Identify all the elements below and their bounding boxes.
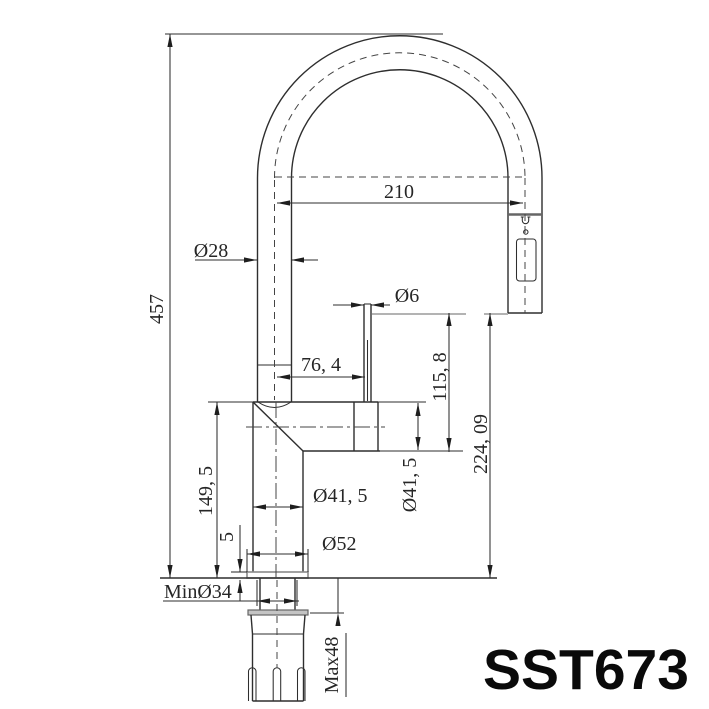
faucet-technical-drawing: 457 210 Ø28 Ø6 76, 4 115, 8 224, 09 Ø41,…	[0, 0, 709, 709]
dimension-d41-5-outlet	[378, 402, 426, 450]
spray-button-dot	[524, 230, 528, 234]
label-outlet-to-deck: 224, 09	[470, 414, 492, 474]
label-base-dia: Ø52	[322, 533, 356, 555]
label-overall-height: 457	[146, 294, 168, 324]
spray-toggle-button	[517, 239, 537, 281]
label-body-height: 149, 5	[195, 466, 217, 516]
label-outlet-dia: Ø41, 5	[399, 458, 421, 512]
label-hose-dia: Ø6	[395, 285, 419, 307]
model-number: SST673	[483, 638, 689, 702]
label-hose-offset: 76, 4	[301, 354, 341, 376]
label-outlet-height: 115, 8	[429, 352, 451, 401]
drawing-canvas: 457 210 Ø28 Ø6 76, 4 115, 8 224, 09 Ø41,…	[0, 0, 709, 709]
label-min-hole: MinØ34	[164, 581, 232, 603]
dimension-labels: 457 210 Ø28 Ø6 76, 4 115, 8 224, 09 Ø41,…	[146, 181, 492, 693]
label-body-dia: Ø41, 5	[313, 485, 367, 507]
label-reach: 210	[384, 181, 414, 203]
label-max-deck-thickness: Max48	[321, 637, 343, 694]
label-base-plate-height: 5	[216, 532, 238, 542]
label-spout-tube-dia: Ø28	[194, 240, 228, 262]
dimension-d41-5-body	[253, 504, 303, 509]
centerlines	[246, 53, 525, 668]
shank-washer	[248, 610, 308, 615]
dimension-d52	[247, 549, 308, 572]
dimension-d6	[333, 302, 390, 307]
base-plate	[247, 572, 308, 578]
spray-head-details	[517, 217, 537, 281]
